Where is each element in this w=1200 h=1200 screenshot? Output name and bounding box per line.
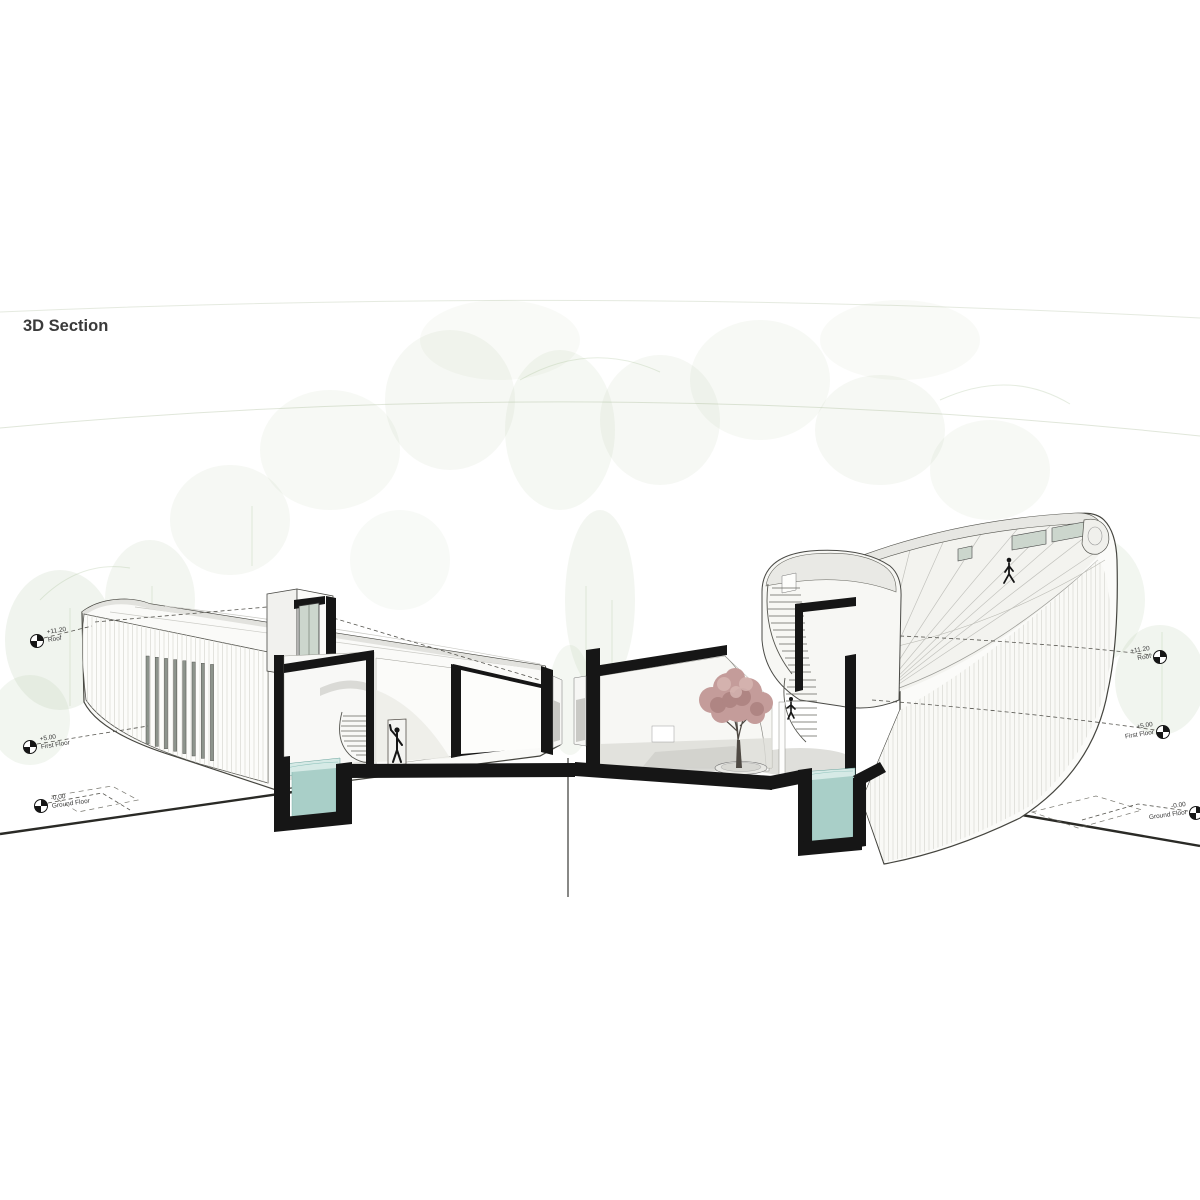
wedge-cut-wall-left (586, 648, 600, 772)
page-title: 3D Section (23, 317, 108, 335)
site-outline-right (1032, 796, 1142, 828)
wedge-end-panel (576, 698, 585, 742)
left-cut-wall-mid (366, 658, 374, 768)
right-cut-wall-a (795, 603, 803, 692)
left-cut-wall-end (541, 666, 553, 755)
level-marker-left-ground-floor: -0.00 Ground Floor (35, 790, 92, 813)
left-cut-wall-2 (451, 664, 461, 758)
section-canvas: +11.20 Roof +5.00 First Floor -0.00 Grou… (0, 0, 1200, 1200)
level-marker-right-ground-floor: -0.00 Ground Floor (1147, 801, 1200, 821)
3d-section-drawing-sheet: +11.20 Roof +5.00 First Floor -0.00 Grou… (0, 0, 1200, 1200)
ground-line-left (0, 791, 300, 834)
left-end-panel (553, 700, 560, 742)
left-bottom-slab (340, 763, 575, 778)
svg-text:First Floor: First Floor (1125, 729, 1156, 741)
svg-text:Ground Floor: Ground Floor (1148, 809, 1188, 821)
left-gallery-room (376, 658, 453, 766)
left-building-half (82, 589, 575, 832)
